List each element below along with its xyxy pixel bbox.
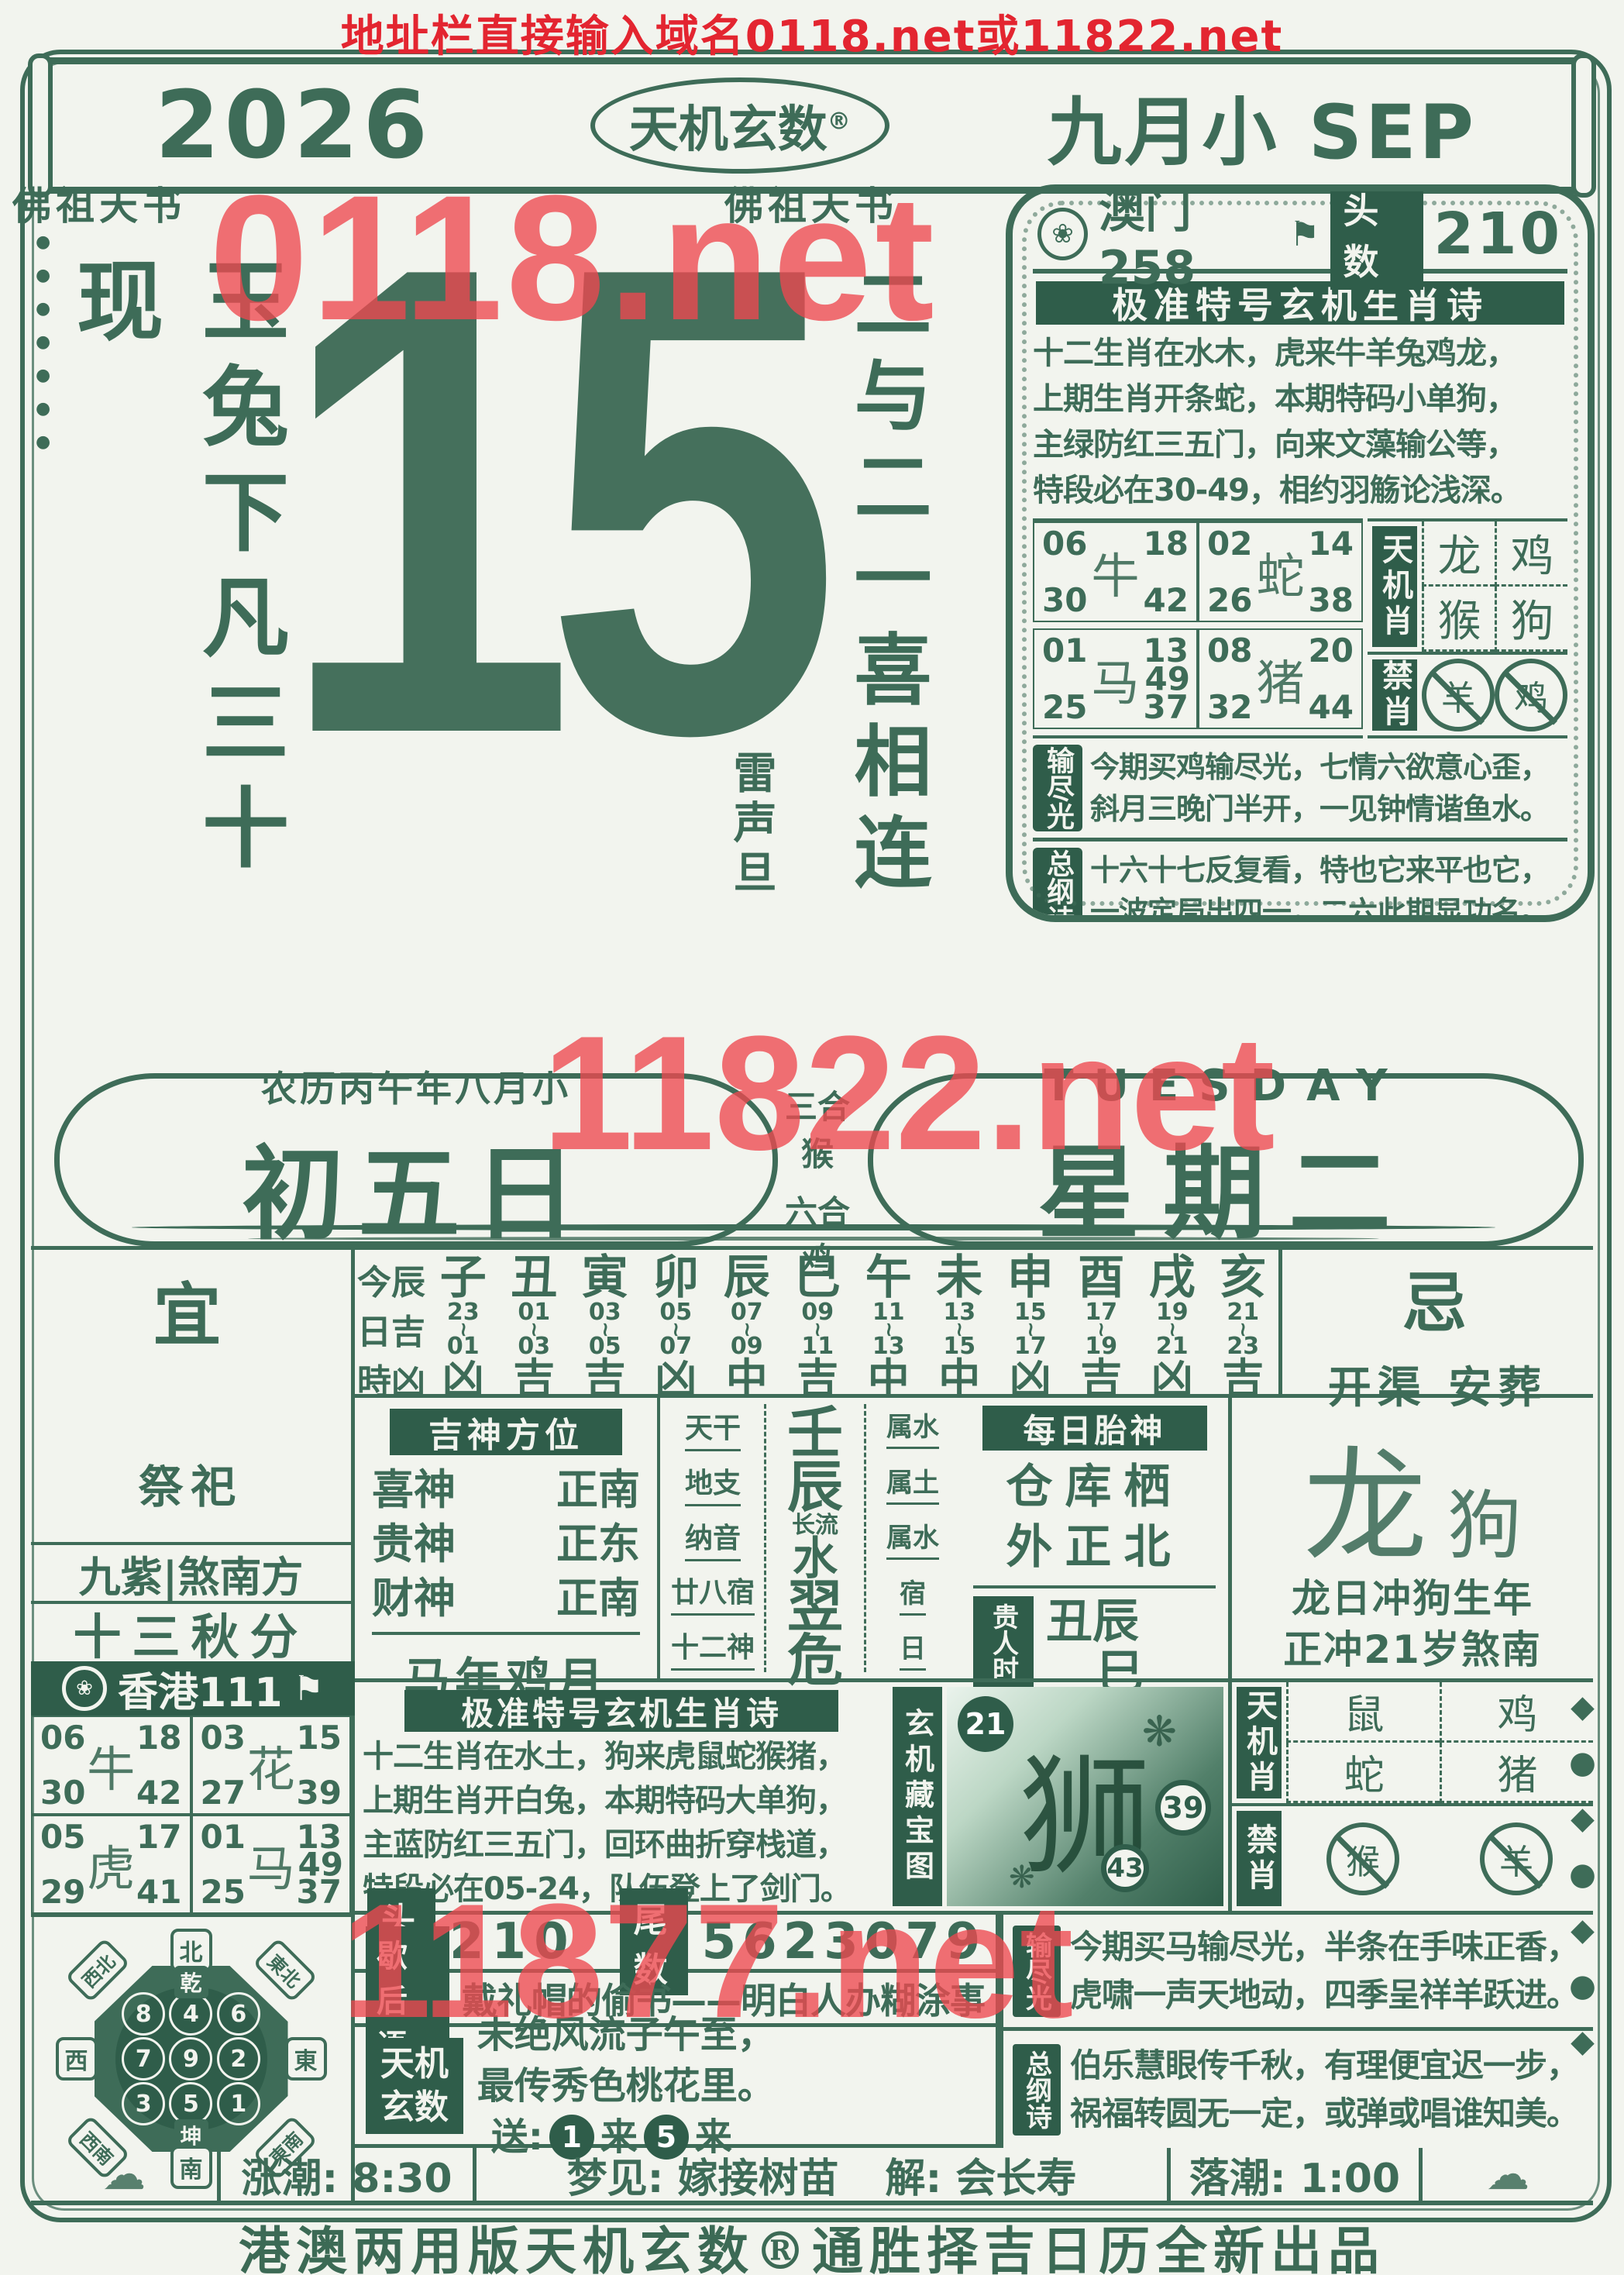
day-suffix: 日 (900, 1627, 926, 1671)
branch-element: 属土 (886, 1461, 939, 1505)
mansion-value: 翌 (787, 1579, 843, 1633)
hour-range: 09 ~ 11 (801, 1303, 834, 1357)
hour-start: 17 (1085, 1303, 1117, 1323)
hour-column: 卯 05 ~ 07 凶 (641, 1253, 712, 1391)
dog-icon: 狗 (1447, 1465, 1522, 1573)
fetal-god-panel: 每日胎神 仓库栖 外正北 贵人时 丑辰 巳 (961, 1398, 1232, 1678)
mystic-line: 最传秀色桃花里。 (477, 2064, 775, 2108)
cell-number: 41 (136, 1873, 181, 1911)
hour-luck: 吉 (1080, 1357, 1122, 1402)
map-number: 21 (958, 1696, 1013, 1752)
earthly-branch: 戌 (1149, 1253, 1196, 1303)
hour-range: 11 ~ 13 (872, 1303, 905, 1357)
direction-west: 西 (56, 2037, 98, 2081)
hour-start: 07 (731, 1303, 763, 1323)
cell-number: 37 (1144, 688, 1189, 726)
cell-number: 02 (1207, 525, 1252, 563)
hour-start: 23 (447, 1303, 480, 1323)
rising-tide: 涨潮: 8:30 (217, 2148, 473, 2201)
shujinguang-label: 输尽光 (1013, 1926, 1061, 2017)
hour-luck: 吉 (1222, 1357, 1264, 1402)
wave-divider (132, 1224, 1495, 1230)
hour-column: 丑 01 ~ 03 吉 (499, 1253, 570, 1391)
shujinguang-panel-2: 输尽光 今期买马输尽光，半条在手味正香， 虎啸一声天地动，四季呈祥羊跃进。 (1000, 1911, 1593, 2027)
hour-column: 戌 19 ~ 21 凶 (1137, 1253, 1208, 1391)
number-cell-snake: 0214 蛇 2638 (1198, 521, 1363, 622)
label-nayin: 纳音 (685, 1516, 741, 1561)
cell-number: 01 (201, 1818, 246, 1856)
cloud-ornament: ☁ (1423, 2148, 1593, 2201)
mystic-number-label: 天机 玄数 (366, 2038, 463, 2134)
hour-table-row-labels: 今辰 日吉 時凶 (355, 1253, 428, 1391)
poem-line: 特段必在30-49，相约羽觞论浅深。 (1033, 468, 1567, 514)
nayin-element-label: 属水 (886, 1516, 939, 1560)
hour-range: 19 ~ 21 (1156, 1303, 1189, 1357)
ganzhi-values: 壬 辰 长流水 翌 危 (764, 1404, 866, 1672)
fetal-god-title: 每日胎神 (982, 1406, 1207, 1451)
weekday-en: TUESDAY (1044, 1061, 1407, 1111)
earthly-branch: 寅 (582, 1253, 628, 1303)
macau-header: ❀ 澳门258 ⚑ 头数 210 (1033, 204, 1567, 274)
flag-icon: ⚑ (1289, 215, 1319, 254)
number-cell-horse: 0113 马 49 2537 (191, 1815, 352, 1914)
cell-number: 39 (297, 1774, 342, 1812)
fetal-god-line: 外正北 (973, 1517, 1216, 1578)
auspicious-column: 宜 祭祀 (31, 1246, 355, 1542)
hour-start: 21 (1227, 1303, 1259, 1323)
ganzhi-attributes: 属水 属土 属水 宿 日 (866, 1404, 959, 1672)
zonggangshi-line: 十六十七反复看，特也它来平也它， (1090, 849, 1549, 891)
map-number: 39 (1155, 1780, 1211, 1836)
direction-northeast: 東北 (252, 1937, 317, 2002)
hour-start: 13 (943, 1303, 975, 1323)
cell-number: 14 (1309, 525, 1354, 563)
heaven-zodiac-label: 天机肖 (1237, 1687, 1282, 1798)
goat-banned-icon: 羊 (1422, 659, 1495, 731)
goat-banned-icon: 羊 (1480, 1822, 1553, 1895)
banned-zodiac-label: 禁肖 (1237, 1811, 1282, 1906)
magic-square-number: 6 (217, 1992, 260, 2036)
cell-number: 38 (1309, 581, 1354, 619)
number-cell-horse: 0113 马 49 2537 (1033, 628, 1198, 729)
label-line: 天机 (380, 2043, 449, 2086)
ox-icon: 牛 (1091, 537, 1139, 607)
monkey-banned-icon: 猴 (1326, 1822, 1399, 1895)
number-cell-tiger: 0517 虎 2941 (31, 1815, 191, 1914)
mansion-suffix: 宿 (900, 1572, 926, 1616)
zonggangshi-line: 祸福转圆无一定，或弹或唱谁知美。 (1070, 2090, 1578, 2138)
hour-luck: 吉 (797, 1357, 838, 1402)
cell-number: 18 (1144, 525, 1189, 563)
right-calligraphy: 二与二一喜相连 (831, 263, 943, 961)
divider (1033, 838, 1567, 842)
magic-square-number: 3 (122, 2082, 165, 2125)
nayin-element: 水 (792, 1537, 838, 1579)
cell-number: 15 (297, 1719, 342, 1757)
cell-number: 17 (136, 1818, 181, 1856)
number-cell-flower: 0315 花 2739 (191, 1716, 352, 1815)
hour-range: 13 ~ 15 (943, 1303, 975, 1357)
earthly-branch: 辰 (724, 1253, 770, 1303)
poem-line: 十二生肖在水木，虎来牛羊兔鸡龙， (1033, 331, 1567, 377)
range-separator: ~ (669, 1321, 683, 1338)
lunar-date-cartouche: 农历丙午年八月小 初五日 (54, 1073, 778, 1247)
inauspicious-label: 忌 (1282, 1251, 1593, 1345)
flower-icon: 花 (247, 1730, 295, 1800)
god-name: 喜神 (372, 1463, 456, 1517)
head-tail-number-row: 头数 210 尾数 5623079 (355, 1911, 1000, 1973)
pig-icon: 猪 (1440, 1743, 1593, 1803)
cell-number: 06 (1042, 525, 1087, 563)
horse-icon: 马 (247, 1829, 295, 1899)
earthly-branch: 申 (1007, 1253, 1054, 1303)
snake-icon: 蛇 (1286, 1743, 1440, 1803)
calendar-page: ◆●◆●◆●◆ ●●●●●●● 地址栏直接输入域名0118.net或11822.… (0, 0, 1624, 2275)
treasure-map-panel: 玄机藏宝图 狮 21 39 43 ❋ ❋ (888, 1678, 1232, 1911)
dog-icon: 狗 (1495, 587, 1567, 652)
cell-number: 01 (1042, 632, 1087, 669)
hour-luck-table: 今辰 日吉 時凶 子 23 ~ 01 凶 丑 (355, 1246, 1278, 1398)
god-direction: 正南 (556, 1463, 640, 1517)
ganzhi-labels: 天干 地支 纳音 廿八宿 十二神 (662, 1404, 764, 1672)
stem-value: 壬 (787, 1406, 843, 1460)
rat-icon: 鼠 (1286, 1682, 1440, 1743)
branch-value: 辰 (787, 1460, 843, 1514)
hour-start: 09 (801, 1303, 834, 1323)
shujinguang-line: 今期买马输尽光，半条在手味正香， (1070, 1923, 1578, 1971)
zodiac-marker-column-2: 天机肖 鼠 鸡 蛇 猪 禁肖 猴 羊 (1232, 1678, 1593, 1911)
label-stem: 天干 (685, 1406, 741, 1451)
row-label: 今辰 (355, 1255, 428, 1304)
left-edge-ornament: ●●●●●●● (36, 232, 50, 452)
cell-number: 30 (40, 1774, 85, 1812)
hour-luck: 凶 (1010, 1357, 1051, 1402)
month-label: 九月小 SEP (1047, 72, 1477, 180)
tiger-icon: 虎 (87, 1829, 135, 1899)
direction-northwest: 西北 (64, 1937, 129, 2002)
monkey-icon: 猴 (775, 1128, 860, 1175)
range-separator: ~ (810, 1321, 824, 1338)
magic-square-number: 1 (217, 2082, 260, 2125)
macau-issue-label: 澳门258 (1099, 184, 1278, 295)
earthly-branch: 午 (865, 1253, 912, 1303)
solar-term-row: 十三秋分 (31, 1601, 355, 1661)
hour-luck: 吉 (584, 1357, 626, 1402)
domain-notice: 地址栏直接输入域名0118.net或11822.net (0, 2, 1624, 64)
cell-number: 25 (201, 1873, 246, 1911)
day-number: 15 (279, 194, 775, 807)
macau-panel: ❀ 澳门258 ⚑ 头数 210 极准特号玄机生肖诗 十二生肖在水木，虎来牛羊兔… (1006, 184, 1595, 922)
hour-range: 01 ~ 03 (518, 1303, 550, 1357)
cell-number: 25 (1042, 688, 1087, 726)
lucky-gods-panel: 吉神方位 喜神正南 贵神正东 财神正南 马年鸡月 (355, 1398, 660, 1678)
hour-column: 未 13 ~ 15 中 (924, 1253, 996, 1391)
range-separator: ~ (527, 1321, 541, 1338)
hour-luck: 中 (868, 1357, 910, 1402)
hour-luck: 凶 (655, 1357, 697, 1402)
cell-number: 30 (1042, 581, 1087, 619)
range-separator: ~ (456, 1321, 470, 1338)
hour-column: 寅 03 ~ 05 吉 (569, 1253, 641, 1391)
lunar-year-month: 农历丙午年八月小 (261, 1061, 571, 1112)
clash-panel: 龙 狗 龙日冲狗生年 正冲21岁煞南 (1232, 1398, 1593, 1678)
right-note: 雷声旦 (721, 750, 783, 944)
zonggangshi-label: 总纲诗 (1013, 2044, 1061, 2136)
hour-start: 19 (1156, 1303, 1189, 1323)
cell-number: 32 (1207, 688, 1252, 726)
shujinguang-label: 输尽光 (1033, 745, 1082, 831)
cell-number: 03 (201, 1719, 246, 1757)
cell-number: 05 (40, 1818, 85, 1856)
hour-start: 11 (872, 1303, 905, 1323)
auspicious-label: 宜 (31, 1261, 351, 1359)
dream-interpretation: 解: 会长寿 (886, 2146, 1077, 2204)
hour-start: 03 (589, 1303, 621, 1323)
ox-icon: 牛 (87, 1730, 135, 1800)
hour-range: 17 ~ 19 (1085, 1303, 1117, 1357)
tail-number-value: 5623079 (702, 1913, 987, 1970)
magic-square-number: 9 (169, 2037, 212, 2081)
head-number-value: 210 (449, 1913, 576, 1970)
macau-number-grid: 0618 牛 3042 0214 蛇 2638 0113 马 49 2537 0… (1033, 518, 1363, 738)
mystic-number-row: 天机 玄数 未绝风流子午至， 最传秀色桃花里。 送: 1 来 5 来 (355, 2027, 1000, 2148)
budda-label-left: 佛祖天书 (12, 175, 186, 231)
earthly-branch: 子 (440, 1253, 487, 1303)
stem-element: 属水 (886, 1406, 939, 1449)
range-separator: ~ (882, 1321, 896, 1338)
zonggangshi-block: 总纲诗 十六十七反复看，特也它来平也它， 一波定局出四一，二六此期显功名。 (1033, 848, 1567, 922)
wave-divider (248, 1237, 1379, 1241)
poem-line: 上期生肖开白兔，本期特码大单狗， (363, 1779, 880, 1823)
label-branch: 地支 (685, 1461, 741, 1506)
star-palace-row: 九紫|煞南方 (31, 1542, 355, 1601)
zodiac-poem: 十二生肖在水木，虎来牛羊兔鸡龙， 上期生肖开条蛇，本期特码小单狗， 主绿防红三五… (1033, 331, 1567, 514)
special-poem-title: 极准特号玄机生肖诗 (404, 1690, 838, 1732)
row-label: 日吉 (355, 1304, 428, 1354)
poem-line: 上期生肖开条蛇，本期特码小单狗， (1033, 377, 1567, 422)
footer-slogan: 港澳两用版天机玄数®通胜择吉日历全新出品 (0, 2210, 1624, 2275)
hour-luck: 中 (938, 1357, 980, 1402)
leaf-icon: ❋ (1009, 1860, 1035, 1895)
god-name: 财神 (372, 1571, 456, 1626)
hour-start: 01 (518, 1303, 550, 1323)
horse-icon: 马 (1091, 644, 1139, 714)
zodiac-marker-column: 天机肖 龙 鸡 猴 狗 禁肖 羊 鸡 (1368, 518, 1567, 738)
poem-line: 主绿防红三五门，向来文藻输公等， (1033, 422, 1567, 468)
label-mansion: 廿八宿 (671, 1570, 755, 1616)
hour-range: 21 ~ 23 (1227, 1303, 1259, 1357)
range-separator: ~ (1024, 1321, 1037, 1338)
row-label: 時凶 (355, 1354, 428, 1403)
sanhe-label: 三合 (785, 1088, 850, 1126)
hour-luck: 凶 (442, 1357, 484, 1402)
head-number-value: 210 (1434, 201, 1563, 267)
treasure-map-image: 狮 21 39 43 ❋ ❋ (947, 1687, 1223, 1906)
rooster-icon: 鸡 (1440, 1682, 1593, 1743)
heaven-zodiac-label: 天机肖 (1372, 526, 1417, 647)
range-separator: ~ (1094, 1321, 1108, 1338)
left-number-grid: 0618 牛 3042 0315 花 2739 0517 虎 2941 0113… (31, 1716, 355, 1914)
poem-line: 主蓝防红三五门，回环曲折穿栈道， (363, 1823, 880, 1867)
earthly-branch: 酉 (1078, 1253, 1124, 1303)
hour-column: 酉 17 ~ 19 吉 (1066, 1253, 1137, 1391)
number-cell-ox: 0618 牛 3042 (1033, 521, 1198, 622)
treasure-map-label: 玄机藏宝图 (893, 1687, 942, 1906)
auspicious-item: 祭祀 (31, 1451, 351, 1516)
poem-line: 十二生肖在水土，狗来虎鼠蛇猴猪， (363, 1735, 880, 1779)
hour-luck: 中 (726, 1357, 768, 1402)
shujinguang-line: 斜月三晚门半开，一见钟情谐鱼水。 (1090, 788, 1549, 830)
hour-range: 07 ~ 09 (731, 1303, 763, 1357)
zonggangshi-label: 总纲诗 (1033, 848, 1082, 922)
range-separator: ~ (598, 1321, 612, 1338)
number-cell-pig: 0820 猪 3244 (1198, 628, 1363, 729)
hour-luck: 凶 (1151, 1357, 1193, 1402)
header-banner: 2026 天机玄数® 九月小 SEP (31, 57, 1593, 194)
god-direction: 正东 (556, 1517, 640, 1571)
lucky-gods-title: 吉神方位 (390, 1409, 622, 1455)
dragon-icon: 龙 (1303, 1441, 1427, 1573)
magic-square-number: 4 (169, 1992, 212, 2036)
cloud-ornament: ☁ (31, 2148, 217, 2201)
magic-square-number: 7 (122, 2037, 165, 2081)
shujinguang-line: 今期买鸡输尽光，七情六欲意心歪， (1090, 746, 1549, 788)
magic-square-number: 8 (122, 1992, 165, 2036)
earthly-branch: 卯 (652, 1253, 699, 1303)
head-number-label: 头数 (1330, 184, 1423, 290)
left-calligraphy: 玉兔下凡三十现 (50, 256, 301, 976)
earthly-branch: 丑 (511, 1253, 557, 1303)
range-separator: ~ (952, 1321, 966, 1338)
hour-column: 申 15 ~ 17 凶 (995, 1253, 1066, 1391)
stem-branch-panel: 天干 地支 纳音 廿八宿 十二神 壬 辰 长流水 翌 危 属水 属土 属水 宿 … (660, 1398, 961, 1678)
magic-square: 846792351 (115, 1987, 267, 2131)
magic-square-number: 2 (217, 2037, 260, 2081)
number-cell-ox: 0618 牛 3042 (31, 1716, 191, 1815)
pig-icon: 猪 (1256, 644, 1304, 714)
zonggangshi-line: 一波定局出四一，二六此期显功名。 (1090, 891, 1549, 922)
earthly-branch: 未 (936, 1253, 982, 1303)
rooster-icon: 鸡 (1495, 521, 1567, 587)
cell-number: 26 (1207, 581, 1252, 619)
monkey-icon: 猴 (1422, 587, 1495, 652)
hour-range: 23 ~ 01 (447, 1303, 480, 1357)
special-zodiac-poem-panel: 极准特号玄机生肖诗 十二生肖在水土，狗来虎鼠蛇猴猪， 上期生肖开白兔，本期特码大… (355, 1678, 888, 1911)
clash-line: 正冲21岁煞南 (1240, 1624, 1585, 1675)
hour-columns: 子 23 ~ 01 凶 丑 01 ~ 03 吉 (428, 1253, 1278, 1391)
cell-number: 06 (40, 1719, 85, 1757)
hour-column: 午 11 ~ 13 中 (853, 1253, 924, 1391)
mystic-line: 未绝风流子午至， (477, 2009, 985, 2060)
map-number: 43 (1101, 1844, 1149, 1892)
cell-number: 42 (136, 1774, 181, 1812)
cell-number: 42 (1144, 581, 1189, 619)
noble-hours-label: 贵人时 (973, 1596, 1034, 1689)
hour-luck: 吉 (513, 1357, 555, 1402)
hk-issue-label: 香港111 (118, 1660, 283, 1718)
leaf-icon: ❋ (1142, 1707, 1177, 1756)
range-separator: ~ (1236, 1321, 1250, 1338)
hour-range: 15 ~ 17 (1014, 1303, 1047, 1357)
range-separator: ~ (740, 1321, 754, 1338)
banned-zodiac-label: 禁肖 (1372, 659, 1417, 731)
noble-hours-value: 丑辰 (1046, 1596, 1144, 1647)
label-twelve-gods: 十二神 (671, 1625, 755, 1671)
hour-column: 亥 21 ~ 23 吉 (1208, 1253, 1279, 1391)
hour-column: 辰 07 ~ 09 中 (711, 1253, 783, 1391)
shujinguang-line: 虎啸一声天地动，四季呈祥羊跃进。 (1070, 1971, 1578, 2019)
cell-number: 08 (1207, 632, 1252, 669)
inauspicious-column: 忌 开渠 安葬 (1278, 1246, 1593, 1398)
fetal-god-line: 仓库栖 (973, 1457, 1216, 1517)
nayin-value: 长流水 (792, 1514, 838, 1579)
range-separator: ~ (1165, 1321, 1179, 1338)
weekday-cartouche: TUESDAY 星期二 (868, 1073, 1584, 1247)
rooster-banned-icon: 鸡 (1495, 659, 1567, 731)
earthly-branch: 亥 (1220, 1253, 1266, 1303)
cell-number: 37 (297, 1873, 342, 1911)
trigram-qian: 乾 (174, 1966, 208, 1998)
clash-line: 龙日冲狗生年 (1240, 1573, 1585, 1624)
zonggangshi-line: 伯乐慧眼传千秋，有理便宜迟一步， (1070, 2042, 1578, 2090)
hour-start: 05 (659, 1303, 692, 1323)
dream-text: 梦见: 嫁接树苗 (567, 2146, 839, 2204)
falling-tide: 落潮: 1:00 (1167, 2148, 1423, 2201)
hk-flag-icon: ⚑ (294, 1669, 324, 1709)
cell-number: 18 (136, 1719, 181, 1757)
shujinguang-block: 输尽光 今期买鸡输尽光，七情六欲意心歪， 斜月三晚门半开，一见钟情谐鱼水。 (1033, 745, 1567, 831)
god-direction: 正南 (556, 1571, 640, 1626)
macau-emblem-icon: ❀ (1037, 208, 1088, 260)
tides-row: ☁ 涨潮: 8:30 梦见: 嫁接树苗 解: 会长寿 落潮: 1:00 ☁ (31, 2148, 1593, 2205)
earthly-branch: 巳 (794, 1253, 841, 1303)
hour-range: 05 ~ 07 (659, 1303, 692, 1357)
hk-emblem-icon: ❀ (62, 1666, 107, 1711)
cell-number: 27 (201, 1774, 246, 1812)
label-line: 玄数 (380, 2086, 449, 2129)
zonggangshi-panel-2: 总纲诗 伯乐慧眼传千秋，有理便宜迟一步， 祸福转圆无一定，或弹或唱谁知美。 (1000, 2027, 1593, 2148)
cell-number: 20 (1309, 632, 1354, 669)
snake-icon: 蛇 (1256, 537, 1304, 607)
hongkong-bar: ❀ 香港111 ⚑ (31, 1661, 355, 1716)
direction-east: 東 (285, 2037, 327, 2081)
registered-mark: ® (827, 108, 851, 136)
hour-column: 巳 09 ~ 11 吉 (783, 1253, 854, 1391)
cell-number: 44 (1309, 688, 1354, 726)
hour-range: 03 ~ 05 (589, 1303, 621, 1357)
hour-start: 15 (1014, 1303, 1047, 1323)
god-name: 贵神 (372, 1517, 456, 1571)
cell-number: 29 (40, 1873, 85, 1911)
dragon-icon: 龙 (1422, 521, 1495, 587)
hour-column: 子 23 ~ 01 凶 (428, 1253, 499, 1391)
